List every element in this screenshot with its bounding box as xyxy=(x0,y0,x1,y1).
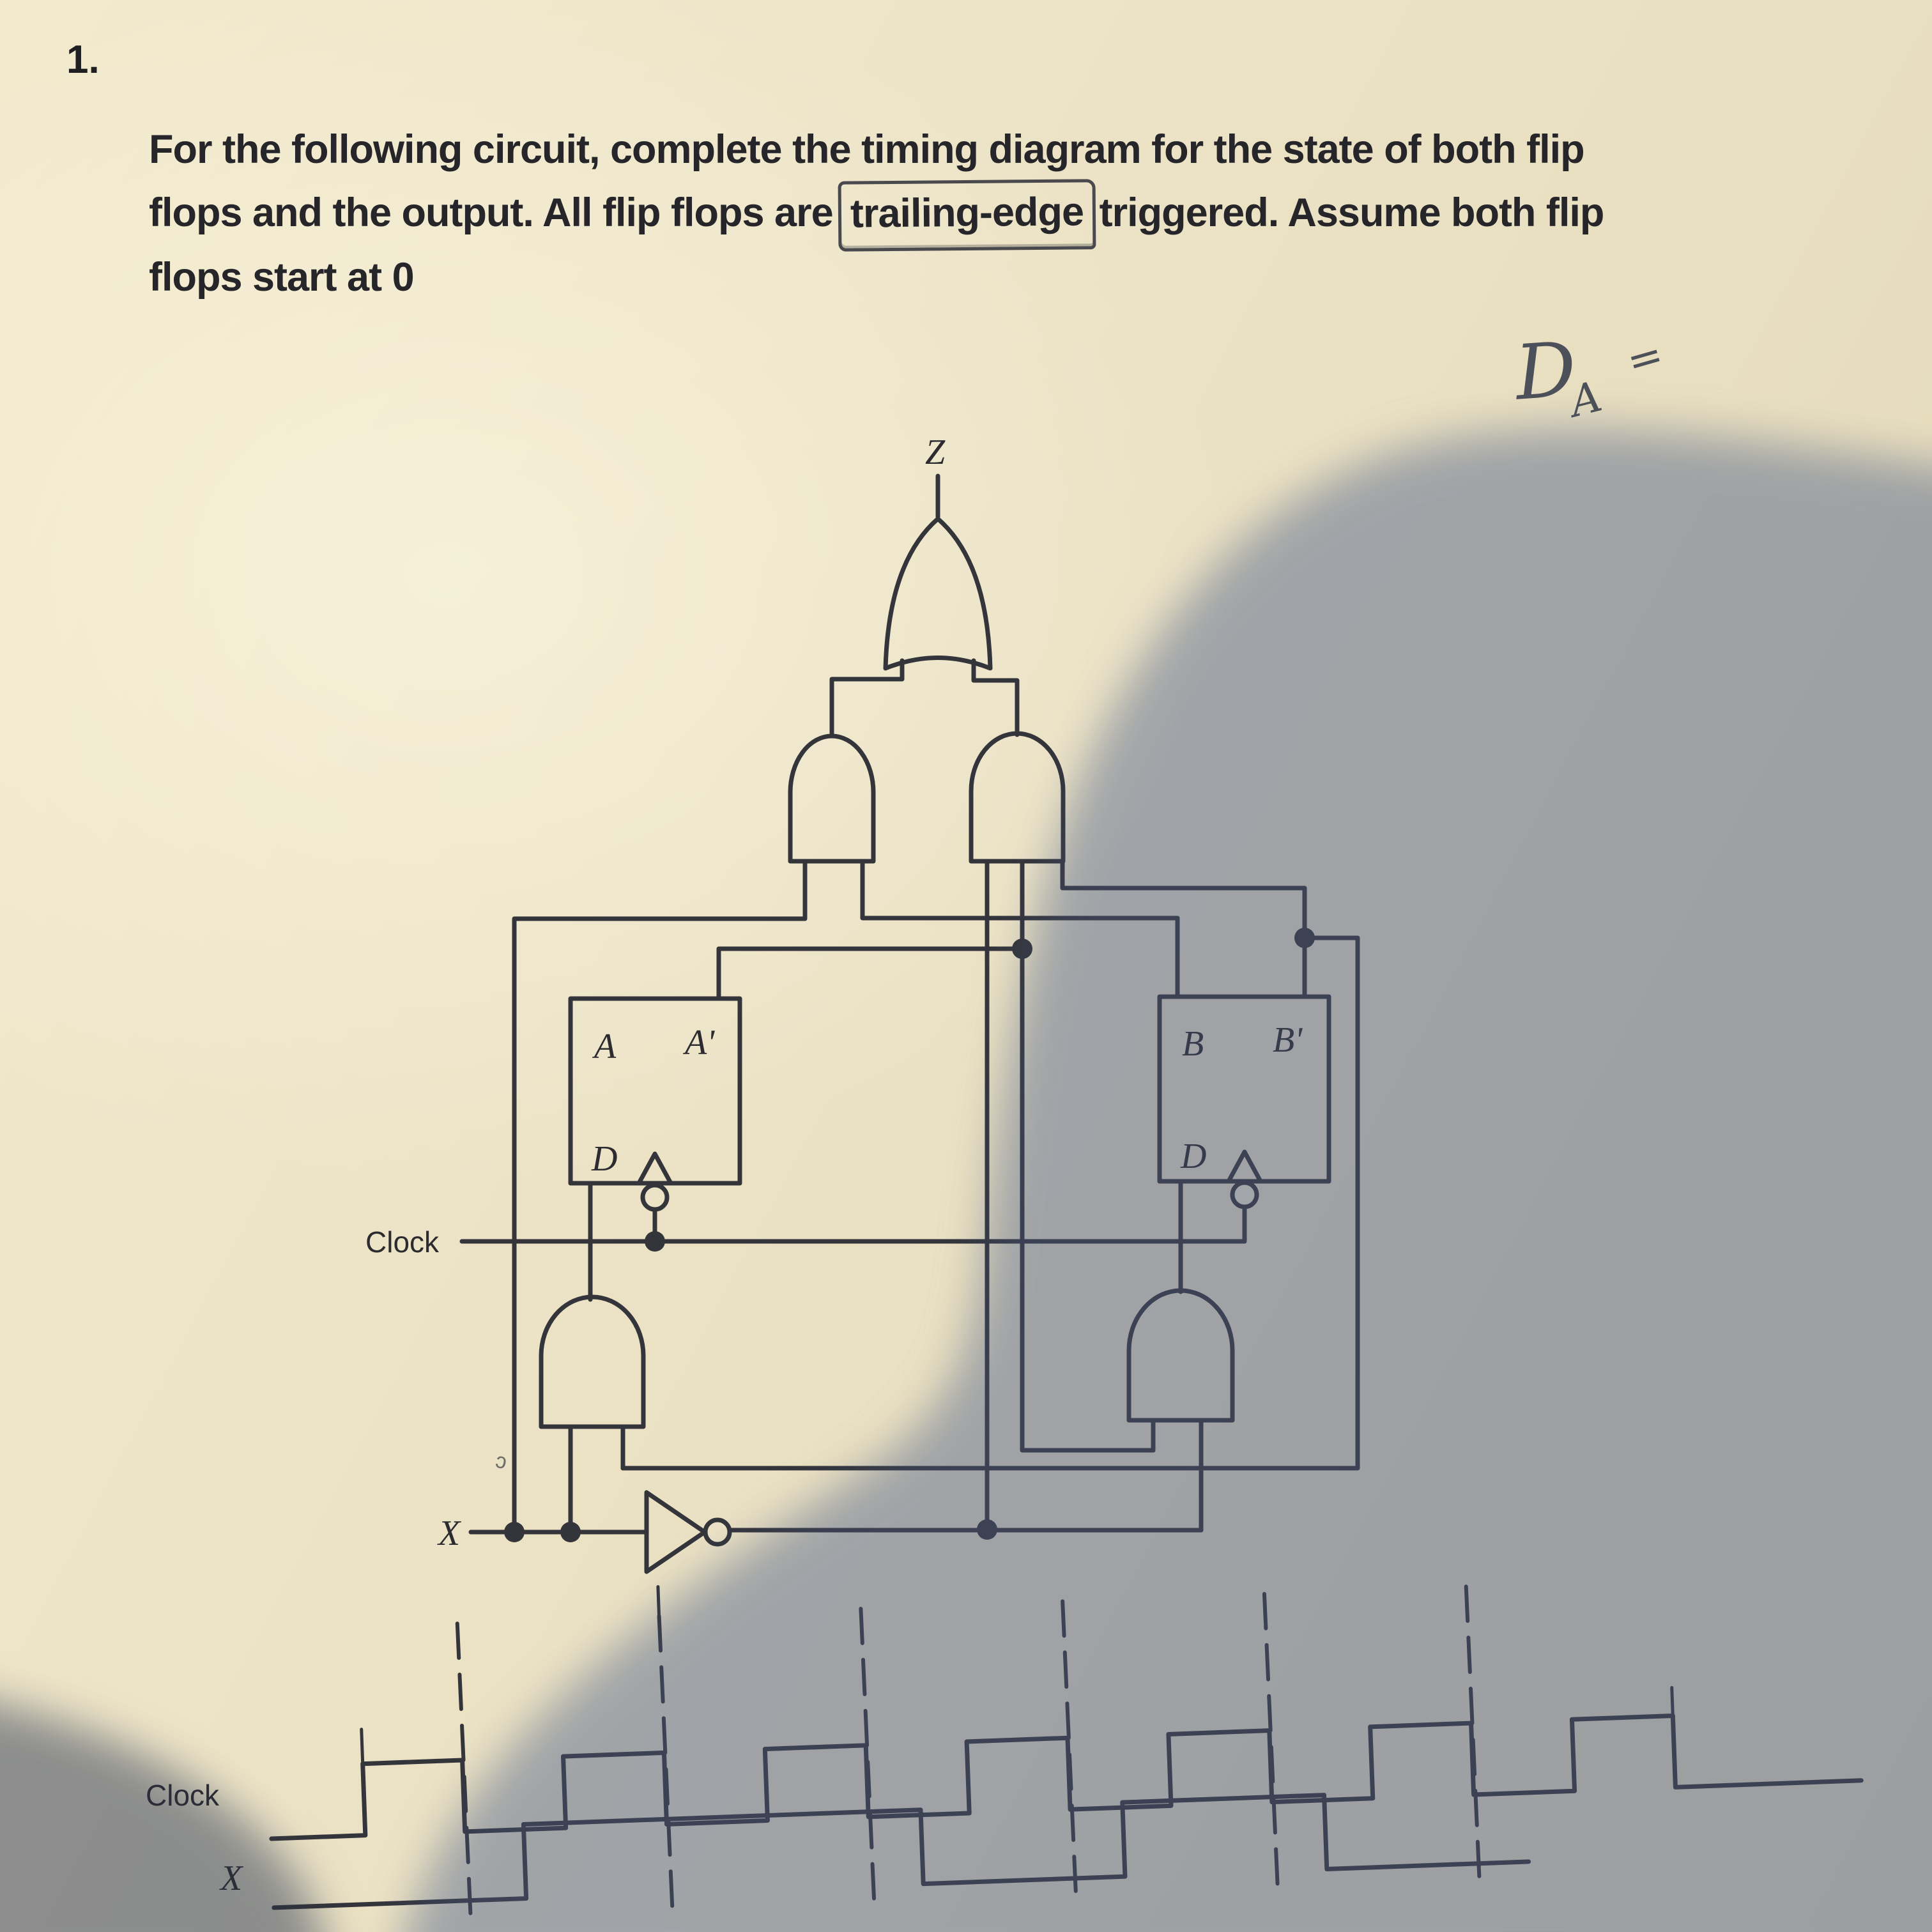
camera-shadow-blue-tint xyxy=(0,0,1932,1932)
photographed-homework-page: { "colors": { "ink": "#34353b", "paper_l… xyxy=(0,0,1932,1932)
main-shadow-tint xyxy=(396,432,1932,1932)
corner-shadow-tint xyxy=(0,1693,329,1932)
